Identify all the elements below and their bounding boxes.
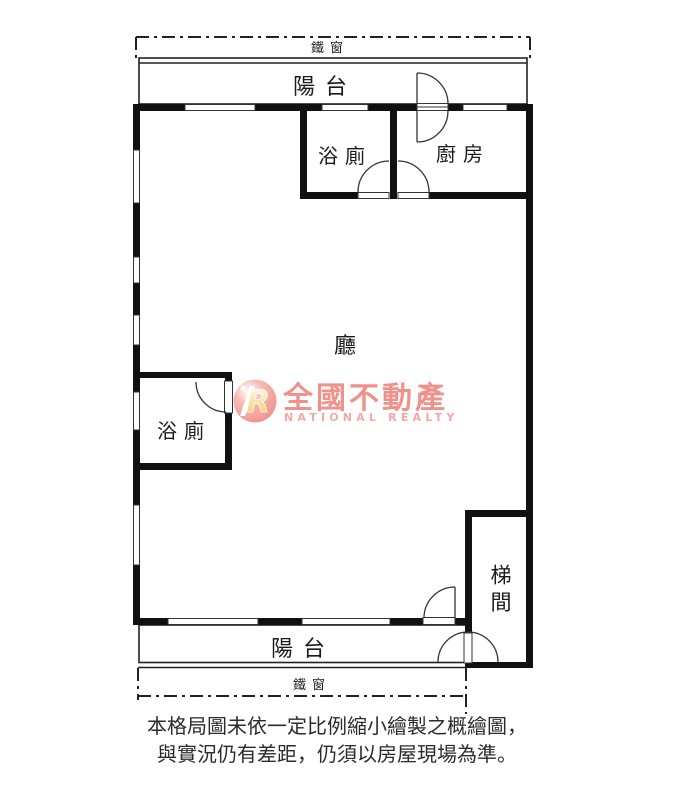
door-leaf-balcony-bottom: [423, 618, 455, 625]
floor-plan-page: 鐵窗 陽台 浴廁 廚房 廳 浴廁 梯間 陽台 鐵窗 R 全國不動產 NATION…: [0, 0, 674, 800]
watermark-logo-letter: R: [246, 384, 270, 420]
windows: [134, 105, 508, 625]
window-top-bathroom: [322, 105, 368, 111]
window-left-4: [134, 505, 140, 565]
door-arc-balcony-bottom: [424, 587, 455, 618]
room-label-bathroom-top: 浴廁: [318, 144, 372, 168]
window-left-bathroom: [134, 392, 140, 430]
window-left-3: [134, 315, 140, 345]
window-top-kitchen: [463, 105, 507, 111]
caption-line-2: 與實況仍有差距，仍須以房屋現場為準。: [157, 742, 517, 766]
door-leaf-bathroom-top: [358, 193, 389, 199]
room-label-bathroom-lower: 浴廁: [157, 419, 211, 443]
door-arc-kitchen: [398, 161, 429, 192]
caption-line-1: 本格局圖未依一定比例縮小繪製之概繪圖，: [147, 714, 527, 738]
watermark: R 全國不動產 NATIONAL REALTY: [234, 380, 459, 425]
window-left-1: [134, 150, 140, 203]
door-leaf-entry: [464, 633, 472, 663]
window-left-2: [134, 257, 140, 283]
room-label-balcony-bottom: 陽台: [271, 637, 335, 662]
door-arc-kitchen-balcony-up: [417, 73, 448, 104]
watermark-brand-en: NATIONAL REALTY: [284, 411, 459, 424]
door-arc-bathroom-lower: [196, 382, 226, 412]
door-leaf-kitchen: [398, 193, 429, 199]
door-leaf-bathroom-lower: [225, 381, 233, 413]
iron-window-label-bottom: 鐵窗: [293, 677, 331, 693]
floor-plan-svg: 鐵窗 陽台 浴廁 廚房 廳 浴廁 梯間 陽台 鐵窗 R 全國不動產 NATION…: [0, 0, 674, 800]
window-bottom-2: [302, 619, 390, 625]
window-top-1: [185, 105, 255, 111]
window-bottom-1: [168, 619, 258, 625]
room-label-stairwell: 梯間: [488, 564, 512, 618]
room-label-kitchen: 廚房: [436, 142, 490, 166]
iron-window-label-top: 鐵窗: [311, 40, 349, 56]
door-arc-kitchen-balcony-down: [417, 111, 448, 142]
room-label-balcony-top: 陽台: [293, 75, 357, 100]
watermark-logo-sparkle: [240, 385, 245, 390]
room-label-living: 廳: [334, 334, 356, 359]
